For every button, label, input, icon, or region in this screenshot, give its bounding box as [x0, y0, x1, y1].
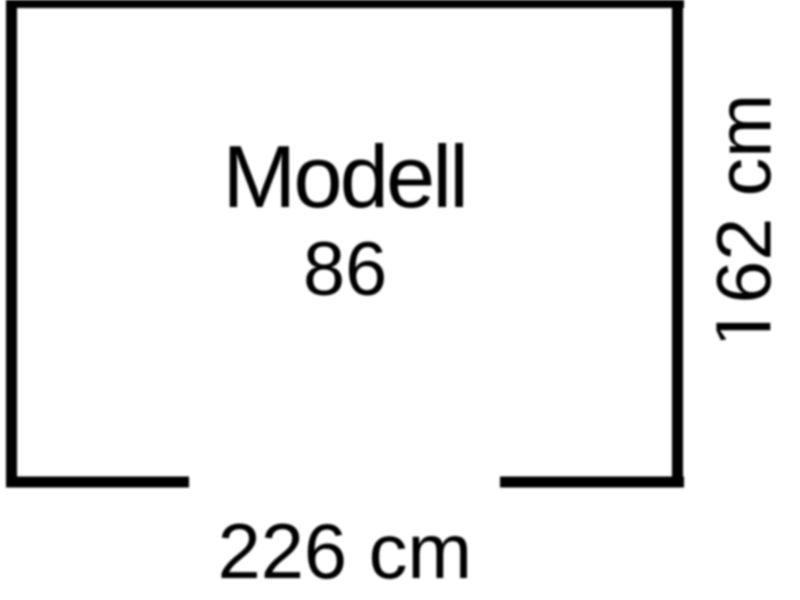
svg-text:226 cm: 226 cm: [218, 509, 472, 595]
svg-text:Modell: Modell: [223, 127, 467, 226]
svg-text:162 cm: 162 cm: [701, 94, 787, 347]
svg-text:86: 86: [303, 227, 387, 312]
